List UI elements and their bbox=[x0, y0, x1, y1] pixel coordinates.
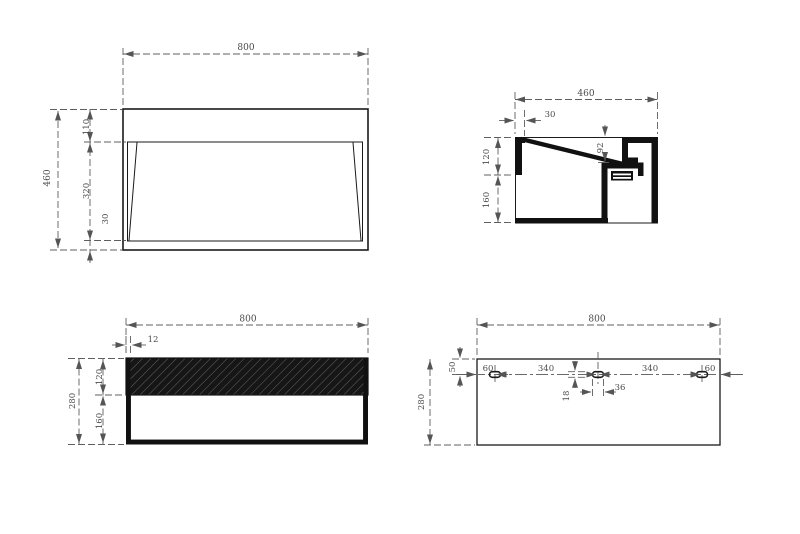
dim-side-rim: 30 bbox=[545, 110, 556, 120]
front-cavity bbox=[131, 395, 364, 440]
front-geometry bbox=[126, 358, 368, 445]
dim-back-height: 280 bbox=[417, 394, 427, 410]
dim-back-slot-offset: 50 bbox=[448, 362, 458, 373]
side-back-wall bbox=[652, 137, 658, 224]
side-bottom-wall bbox=[515, 218, 608, 224]
dim-side-lower: 160 bbox=[482, 192, 492, 208]
dim-side-upper: 120 bbox=[482, 149, 492, 165]
dim-plan-front-rim: 30 bbox=[101, 214, 111, 225]
dim-back-width: 800 bbox=[588, 315, 605, 325]
dim-front-height: 280 bbox=[68, 393, 78, 409]
dim-front-lower: 160 bbox=[95, 413, 105, 429]
side-keyhole-ledge bbox=[622, 158, 638, 164]
plan-basin-opening bbox=[128, 142, 363, 241]
front-left-wall bbox=[126, 358, 131, 445]
dim-back-edge-right: 60 bbox=[705, 364, 716, 374]
plan-dimensions: 800 460 110 320 30 bbox=[43, 43, 368, 263]
front-bottom-wall bbox=[126, 440, 368, 445]
side-keyhole-face bbox=[622, 141, 628, 160]
side-geometry bbox=[515, 137, 658, 224]
front-section-view: 800 12 280 120 160 bbox=[40, 300, 400, 470]
dim-back-edge-left: 60 bbox=[483, 364, 494, 374]
plan-outer-profile bbox=[123, 109, 368, 250]
dim-front-wall: 12 bbox=[148, 335, 159, 345]
plan-view: 800 460 110 320 30 bbox=[30, 30, 390, 280]
side-outer-profile bbox=[516, 138, 658, 224]
side-section-view: 460 30 120 160 92 bbox=[420, 60, 700, 260]
back-view: 800 50 280 60 340 340 60 bbox=[405, 300, 750, 470]
back-dimensions: 800 50 280 60 340 340 60 bbox=[417, 315, 742, 446]
dim-back-slot-height: 18 bbox=[562, 391, 572, 402]
dim-back-pitch-right: 340 bbox=[642, 364, 658, 374]
dim-plan-depth: 460 bbox=[43, 169, 53, 186]
dim-front-width: 800 bbox=[239, 315, 256, 325]
plan-bowl-slope-right bbox=[353, 143, 361, 241]
side-drain-step bbox=[638, 163, 644, 177]
dim-plan-deck: 110 bbox=[82, 119, 92, 135]
dim-side-depth: 460 bbox=[577, 89, 594, 99]
side-drain-flange bbox=[611, 171, 633, 181]
front-hatched-section bbox=[126, 358, 368, 395]
dim-plan-bowl: 320 bbox=[82, 183, 92, 199]
dim-back-slot-width: 36 bbox=[615, 383, 626, 393]
plan-geometry bbox=[123, 109, 368, 250]
technical-drawing-sheet: 800 460 110 320 30 bbox=[0, 0, 800, 534]
side-dimensions: 460 30 120 160 92 bbox=[482, 89, 658, 223]
side-mid-wall bbox=[602, 164, 608, 224]
back-geometry bbox=[452, 352, 745, 445]
dim-back-pitch-left: 340 bbox=[538, 364, 554, 374]
dim-front-upper: 120 bbox=[95, 369, 105, 385]
dim-side-drain-drop: 92 bbox=[596, 143, 606, 154]
side-basin-slope bbox=[521, 139, 627, 165]
plan-bowl-slope-left bbox=[129, 143, 137, 241]
front-right-wall bbox=[364, 358, 369, 445]
dim-plan-width: 800 bbox=[237, 43, 254, 53]
